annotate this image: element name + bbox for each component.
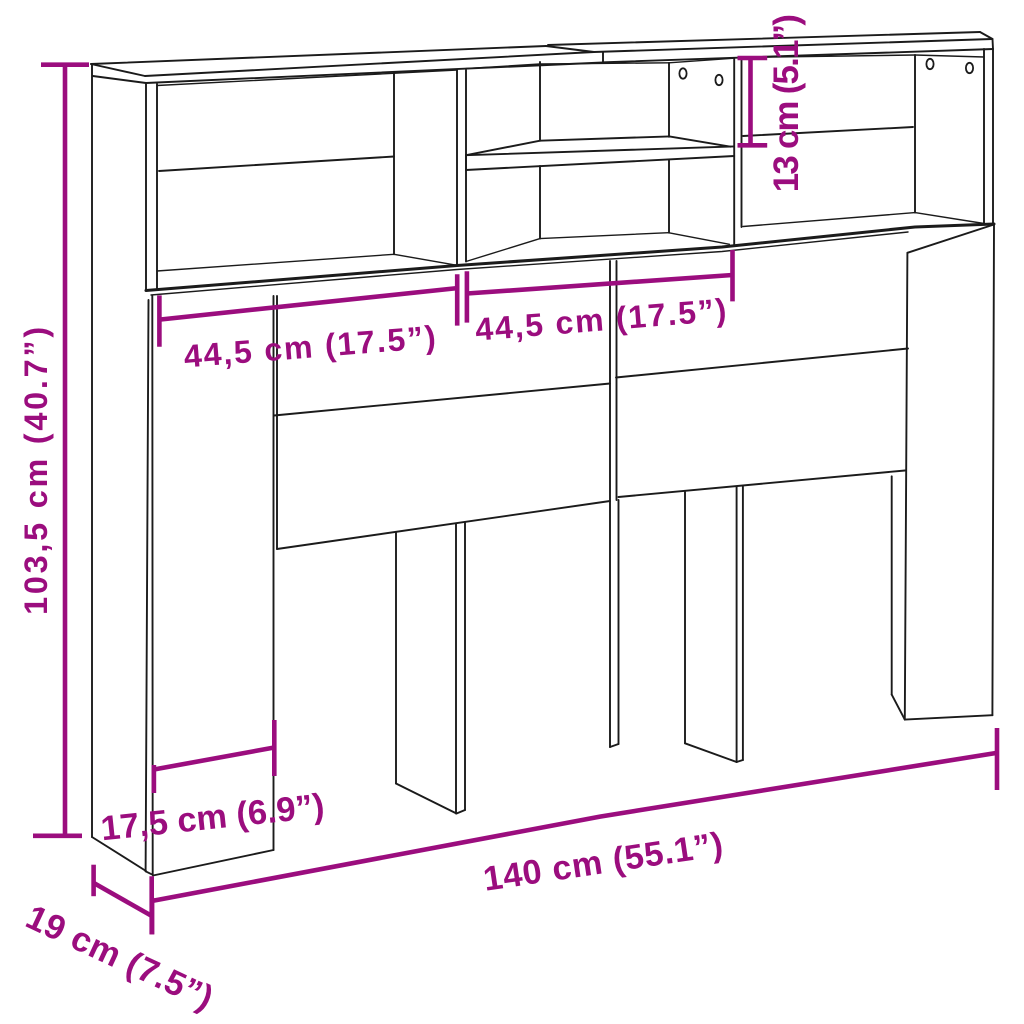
svg-text:13 cm (5.1”): 13 cm (5.1”) — [767, 16, 806, 193]
svg-text:103,5 cm (40.7”): 103,5 cm (40.7”) — [18, 324, 54, 615]
